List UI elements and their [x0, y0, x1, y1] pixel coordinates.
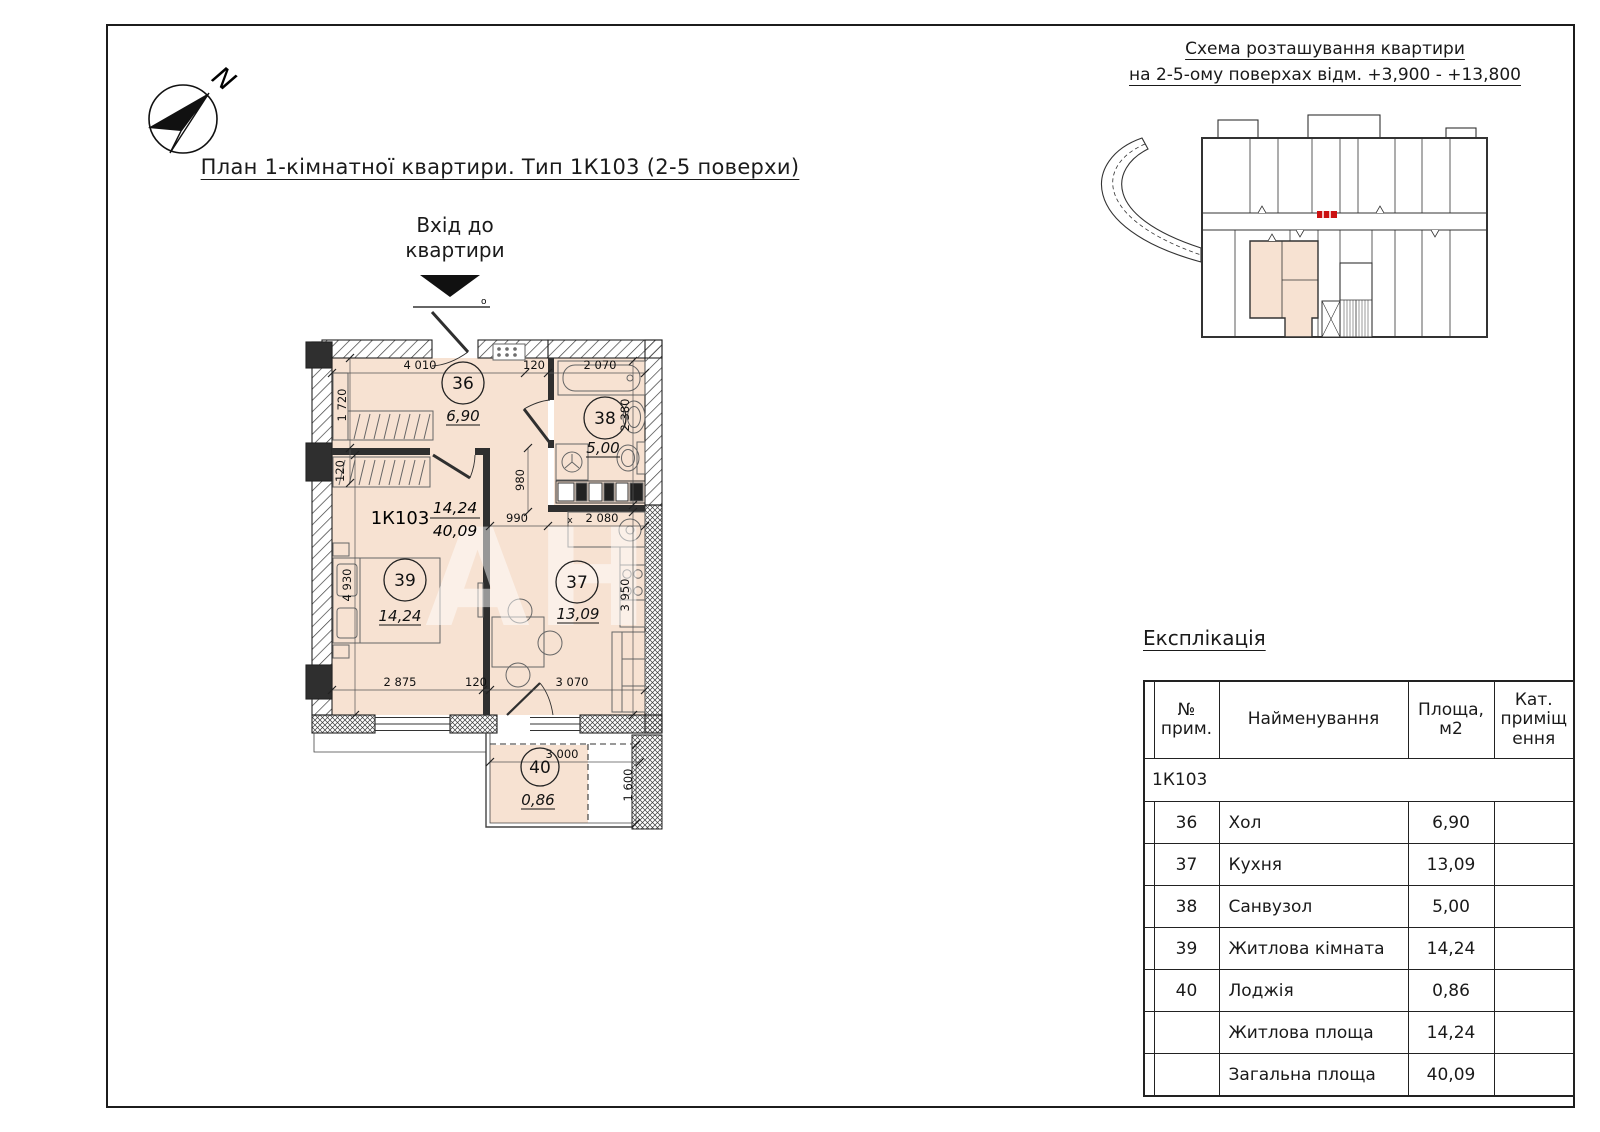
entrance-label: Вхід до квартири	[365, 213, 545, 263]
row-name: Житлова площа	[1219, 1012, 1408, 1054]
dim-loggia-height: 1 600	[621, 769, 635, 802]
row-cat	[1494, 802, 1574, 844]
dim-corridor-width: 990	[506, 511, 528, 525]
table-row: Житлова площа 14,24	[1144, 1012, 1574, 1054]
entrance-door-mark: о	[481, 297, 487, 307]
dim-wall-b: 120	[333, 460, 347, 482]
legend-header-cat: Кат. приміщ ення	[1494, 681, 1574, 759]
row-area: 13,09	[1408, 844, 1494, 886]
row-num: 39	[1154, 928, 1219, 970]
legend-header-name: Найменування	[1219, 681, 1408, 759]
table-row: 40 Лоджія 0,86	[1144, 970, 1574, 1012]
building-bump	[1308, 115, 1380, 138]
elevator	[1322, 301, 1340, 337]
room-area-38: 5,00	[586, 439, 619, 457]
row-area: 5,00	[1408, 886, 1494, 928]
row-name: Хол	[1219, 802, 1408, 844]
legend-header-row: № прим. Найменування Площа, м2 Кат. прим…	[1144, 681, 1574, 759]
room-number-40: 40	[529, 758, 551, 778]
room-number-38: 38	[594, 409, 616, 429]
building-bump	[1446, 128, 1476, 138]
table-row: Загальна площа 40,09	[1144, 1054, 1574, 1097]
row-num	[1154, 1012, 1219, 1054]
row-name: Загальна площа	[1219, 1054, 1408, 1097]
dim-wall-c: 120	[465, 675, 487, 689]
dim-kitchen-bwidth: 3 070	[556, 675, 589, 689]
row-name: Лоджія	[1219, 970, 1408, 1012]
row-cat	[1494, 970, 1574, 1012]
building-bump	[1218, 120, 1258, 138]
apartment-living-area: 14,24	[433, 499, 477, 517]
entrance-label-line1: Вхід до	[365, 213, 545, 238]
legend-header-spacer	[1144, 681, 1154, 759]
curved-wing	[1102, 138, 1201, 262]
row-area: 0,86	[1408, 970, 1494, 1012]
row-cat	[1494, 886, 1574, 928]
compass-needle-dark	[148, 93, 209, 131]
row-num: 40	[1154, 970, 1219, 1012]
legend-table: № прим. Найменування Площа, м2 Кат. прим…	[1143, 680, 1575, 1097]
row-name: Кухня	[1219, 844, 1408, 886]
row-name: Житлова кімната	[1219, 928, 1408, 970]
table-row: 39 Житлова кімната 14,24	[1144, 928, 1574, 970]
row-cat	[1494, 844, 1574, 886]
table-row: 38 Санвузол 5,00	[1144, 886, 1574, 928]
scheme-title-line2: на 2-5-ому поверхах відм. +3,900 - +13,8…	[1115, 62, 1535, 88]
dim-kitchen-height: 3 950	[618, 579, 632, 612]
stairwell	[1340, 263, 1372, 337]
dim-corridor-height: 980	[513, 469, 527, 491]
row-num: 37	[1154, 844, 1219, 886]
table-row: 36 Хол 6,90	[1144, 802, 1574, 844]
room-number-36: 36	[452, 374, 474, 394]
room-number-37: 37	[566, 573, 588, 593]
legend-group-row: 1К103	[1144, 759, 1574, 802]
dim-hall-wall: 120	[523, 358, 545, 372]
row-area: 6,90	[1408, 802, 1494, 844]
row-area: 14,24	[1408, 1012, 1494, 1054]
electric-panel	[493, 344, 525, 360]
dim-kitchen-width: 2 080	[586, 511, 619, 525]
dim-living-width: 2 875	[384, 675, 417, 689]
dim-bath-width: 2 070	[584, 358, 617, 372]
apartment-code: 1К103	[371, 508, 430, 529]
row-cat	[1494, 1012, 1574, 1054]
legend-header-area: Площа, м2	[1408, 681, 1494, 759]
row-num: 36	[1154, 802, 1219, 844]
page-title: План 1-кімнатної квартири. Тип 1К103 (2-…	[190, 155, 810, 179]
room-area-37: 13,09	[557, 605, 600, 623]
dim-hall-width: 4 010	[404, 358, 437, 372]
location-marker	[1317, 211, 1337, 218]
room-area-36: 6,90	[446, 407, 479, 425]
north-compass-icon: N	[130, 45, 250, 170]
entrance-label-line2: квартири	[365, 238, 545, 263]
compass-north-label: N	[206, 61, 241, 98]
floor-plan: о	[300, 265, 690, 845]
dim-x-mark: х	[567, 516, 573, 526]
row-area: 40,09	[1408, 1054, 1494, 1097]
entrance-door-leaf	[432, 312, 468, 352]
dim-living-height: 4 930	[340, 569, 354, 602]
loggia-structure	[314, 733, 662, 829]
row-cat	[1494, 1054, 1574, 1097]
row-name: Санвузол	[1219, 886, 1408, 928]
row-num: 38	[1154, 886, 1219, 928]
apartment-total-area: 40,09	[433, 522, 477, 540]
legend-title: Експлікація	[1143, 626, 1266, 650]
scheme-title-line1: Схема розташування квартири	[1115, 36, 1535, 62]
table-row: 37 Кухня 13,09	[1144, 844, 1574, 886]
drawing-sheet: N План 1-кімнатної квартири. Тип 1К103 (…	[0, 0, 1600, 1132]
row-cat	[1494, 928, 1574, 970]
room-area-40: 0,86	[521, 791, 554, 809]
scheme-title: Схема розташування квартири на 2-5-ому п…	[1115, 36, 1535, 88]
entrance-arrow-icon: о	[413, 275, 490, 307]
row-area: 14,24	[1408, 928, 1494, 970]
building-location-scheme	[1050, 108, 1500, 353]
room-number-39: 39	[394, 571, 416, 591]
room-area-39: 14,24	[379, 607, 422, 625]
legend-header-num: № прим.	[1154, 681, 1219, 759]
legend-group-label: 1К103	[1144, 759, 1574, 802]
row-num	[1154, 1054, 1219, 1097]
dim-hall-height: 1 720	[335, 389, 349, 422]
